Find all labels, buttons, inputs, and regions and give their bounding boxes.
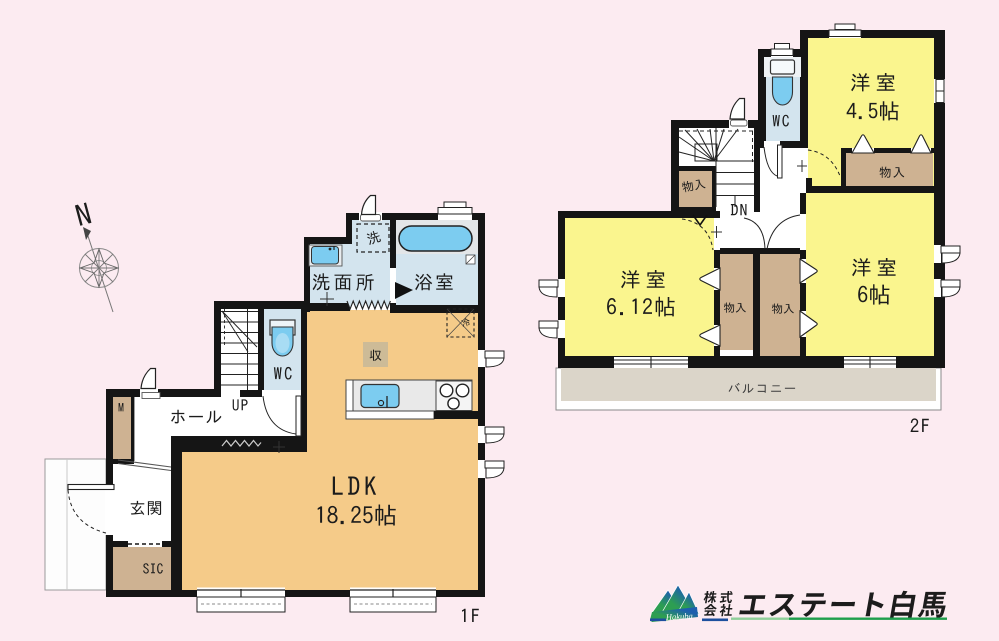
svg-text:Hakuba: Hakuba [665,611,693,622]
